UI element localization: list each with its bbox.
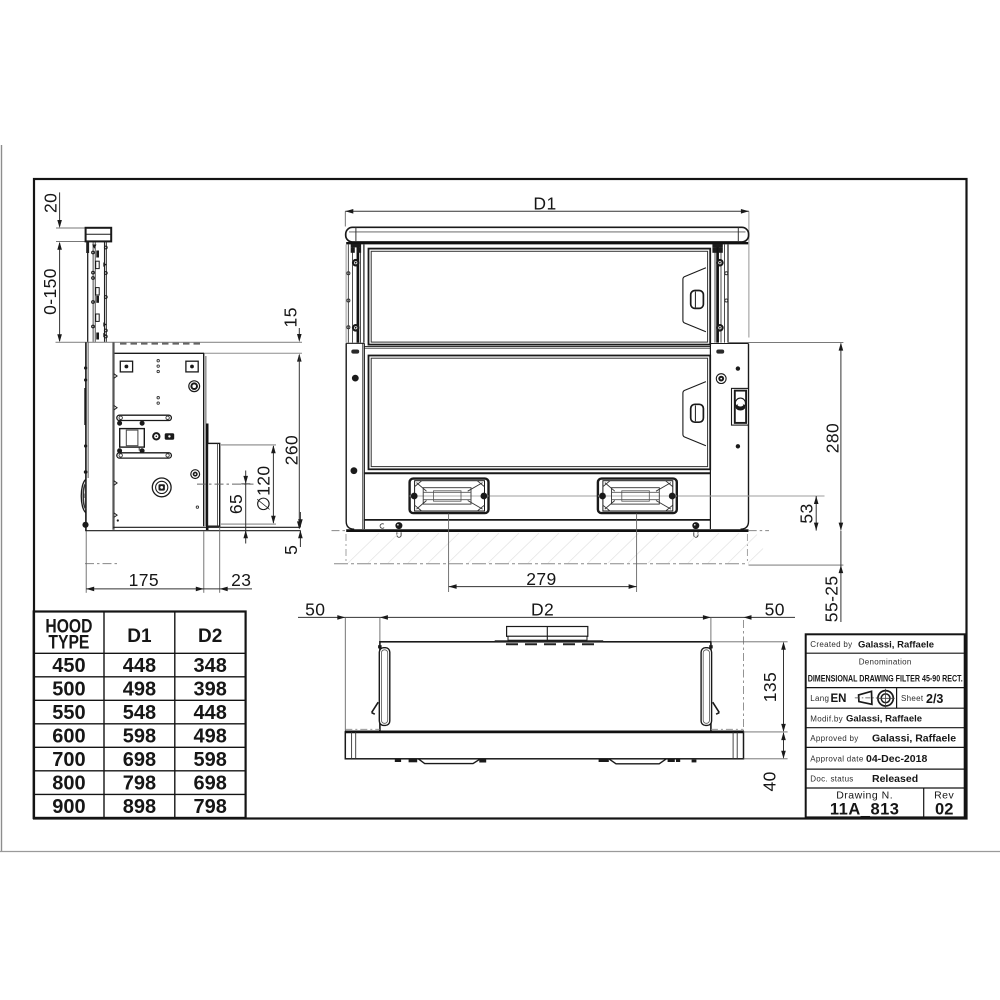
svg-text:448: 448 (123, 655, 156, 677)
svg-text:450: 450 (52, 655, 85, 677)
svg-text:D2: D2 (198, 626, 222, 647)
svg-text:0-150: 0-150 (40, 268, 60, 315)
svg-text:348: 348 (194, 655, 227, 677)
svg-text:550: 550 (52, 702, 85, 724)
svg-text:40: 40 (760, 771, 780, 791)
svg-text:598: 598 (123, 726, 156, 748)
svg-text:Lang: Lang (810, 694, 829, 703)
svg-text:50: 50 (305, 600, 325, 620)
svg-text:EN: EN (831, 693, 847, 705)
svg-text:D2: D2 (531, 600, 554, 620)
svg-text:Approval date: Approval date (810, 755, 864, 764)
svg-text:898: 898 (123, 796, 156, 818)
svg-text:02: 02 (935, 801, 953, 819)
svg-text:280: 280 (823, 423, 843, 453)
svg-text:04-Dec-2018: 04-Dec-2018 (866, 753, 927, 765)
svg-text:900: 900 (52, 796, 85, 818)
svg-text:398: 398 (194, 679, 227, 701)
svg-text:500: 500 (52, 679, 85, 701)
svg-text:2/3: 2/3 (926, 692, 943, 706)
svg-text:Modif.by: Modif.by (810, 714, 843, 723)
svg-text:700: 700 (52, 749, 85, 771)
svg-text:548: 548 (123, 702, 156, 724)
svg-text:448: 448 (194, 702, 227, 724)
svg-text:800: 800 (52, 773, 85, 795)
svg-text:Sheet: Sheet (901, 694, 924, 703)
svg-text:20: 20 (41, 193, 61, 213)
svg-text:D1: D1 (533, 194, 556, 214)
svg-text:Galassi, Raffaele: Galassi, Raffaele (872, 732, 956, 744)
svg-text:175: 175 (129, 570, 159, 590)
svg-text:DIMENSIONAL DRAWING FILTER 45-: DIMENSIONAL DRAWING FILTER 45-90 RECT. (808, 674, 963, 684)
svg-text:D1: D1 (127, 626, 152, 647)
svg-text:498: 498 (123, 679, 156, 701)
svg-text:798: 798 (194, 796, 227, 818)
svg-text:798: 798 (123, 773, 156, 795)
svg-text:Created by: Created by (810, 640, 852, 649)
svg-text:498: 498 (194, 726, 227, 748)
svg-text:598: 598 (194, 749, 227, 771)
svg-text:15: 15 (280, 307, 300, 327)
svg-text:Denomination: Denomination (859, 658, 912, 667)
svg-text:5: 5 (281, 545, 301, 555)
svg-text:Released: Released (872, 773, 918, 785)
svg-text:23: 23 (231, 570, 251, 590)
svg-text:11A_813: 11A_813 (830, 801, 900, 819)
svg-text:Galassi, Raffaele: Galassi, Raffaele (846, 714, 922, 725)
svg-text:50: 50 (765, 600, 785, 620)
svg-text:Approved by: Approved by (810, 734, 858, 743)
svg-text:Doc. status: Doc. status (810, 775, 853, 784)
svg-text:600: 600 (52, 726, 85, 748)
svg-text:55-25: 55-25 (822, 575, 842, 622)
svg-text:TYPE: TYPE (48, 633, 89, 654)
svg-text:698: 698 (123, 749, 156, 771)
svg-text:∅120: ∅120 (254, 465, 274, 511)
svg-text:Galassi, Raffaele: Galassi, Raffaele (858, 640, 934, 651)
svg-text:260: 260 (282, 435, 302, 465)
svg-text:135: 135 (760, 672, 780, 702)
svg-text:65: 65 (226, 494, 246, 514)
svg-text:279: 279 (526, 569, 556, 589)
svg-text:698: 698 (194, 773, 227, 795)
svg-text:53: 53 (797, 503, 817, 523)
